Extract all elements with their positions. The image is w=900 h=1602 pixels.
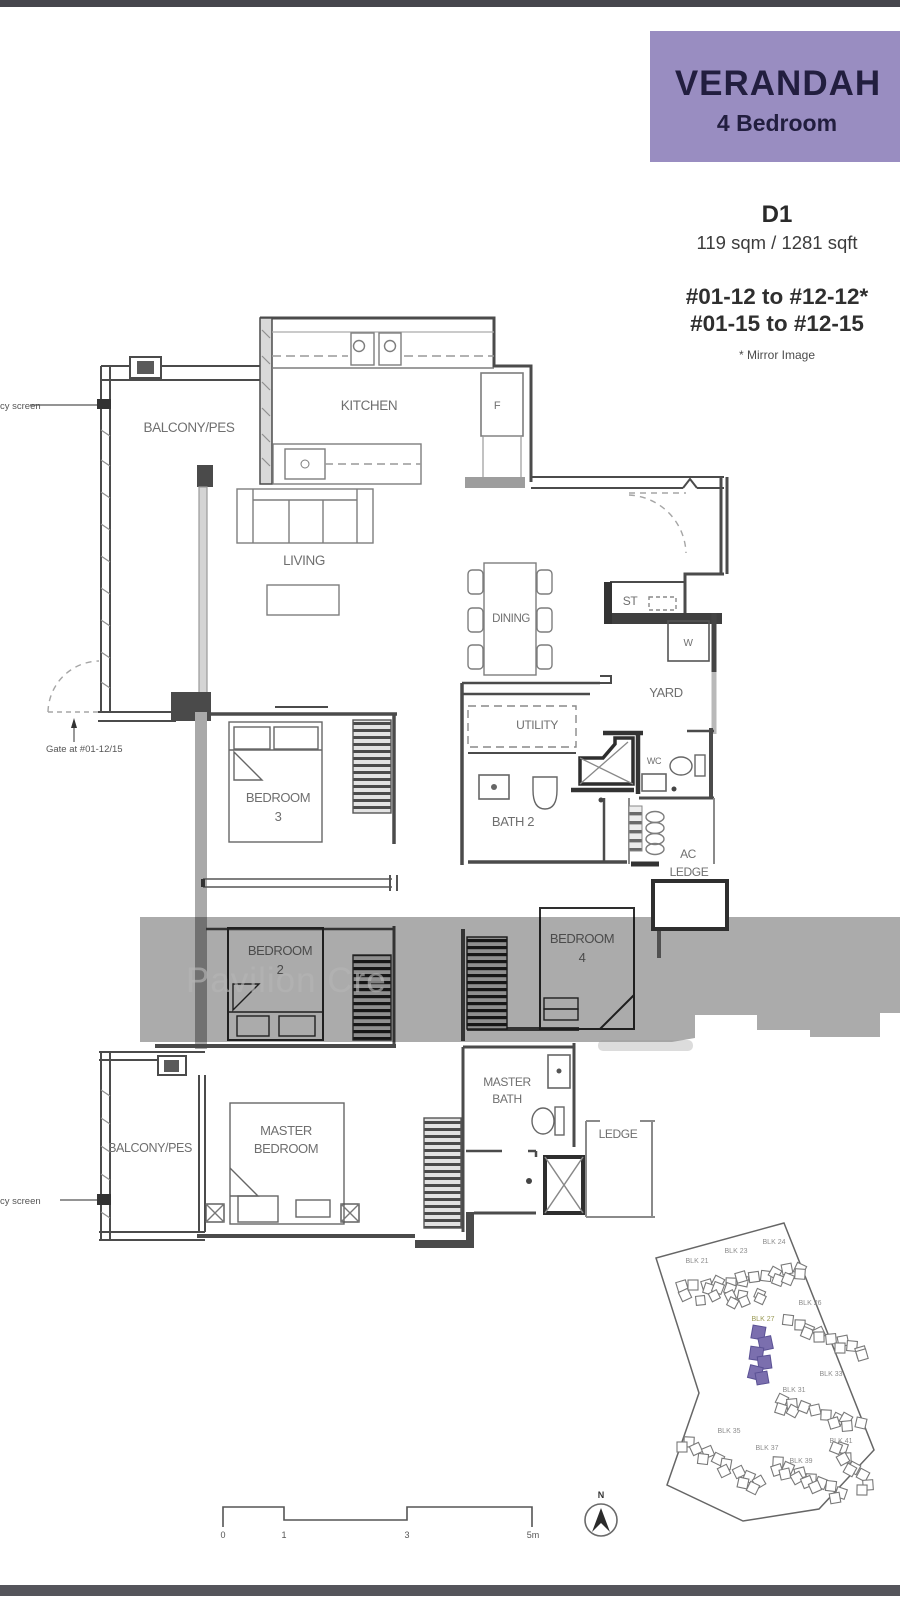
svg-text:BATH: BATH	[492, 1092, 522, 1106]
svg-text:BEDROOM: BEDROOM	[246, 790, 310, 805]
svg-text:119 sqm / 1281 sqft: 119 sqm / 1281 sqft	[696, 232, 857, 253]
svg-text:BLK 21: BLK 21	[686, 1258, 709, 1265]
svg-text:W: W	[683, 638, 693, 649]
svg-text:3: 3	[404, 1530, 409, 1540]
svg-text:Pavilion Cre: Pavilion Cre	[186, 961, 387, 1000]
svg-text:BLK 27: BLK 27	[752, 1316, 775, 1323]
svg-text:LEDGE: LEDGE	[599, 1127, 638, 1141]
svg-text:BLK 37: BLK 37	[756, 1445, 779, 1452]
svg-text:KITCHEN: KITCHEN	[341, 398, 397, 413]
svg-text:#01-12 to #12-12*: #01-12 to #12-12*	[686, 284, 869, 309]
svg-text:cy screen: cy screen	[0, 401, 41, 412]
svg-text:4 Bedroom: 4 Bedroom	[717, 110, 837, 136]
svg-text:YARD: YARD	[649, 685, 683, 700]
svg-text:BEDROOM: BEDROOM	[254, 1141, 318, 1156]
svg-text:BLK 35: BLK 35	[718, 1428, 741, 1435]
svg-text:BLK 24: BLK 24	[763, 1239, 786, 1246]
svg-text:#01-15 to #12-15: #01-15 to #12-15	[690, 311, 864, 336]
svg-text:BALCONY/PES: BALCONY/PES	[108, 1141, 192, 1155]
svg-text:D1: D1	[762, 201, 793, 228]
svg-text:N: N	[598, 1490, 605, 1500]
svg-text:BLK 39: BLK 39	[790, 1458, 813, 1465]
svg-text:* Mirror Image: * Mirror Image	[739, 348, 815, 362]
svg-text:ST: ST	[623, 594, 639, 608]
svg-text:BLK 41: BLK 41	[830, 1438, 853, 1445]
svg-text:LIVING: LIVING	[283, 553, 325, 568]
svg-text:1: 1	[281, 1530, 286, 1540]
svg-text:WC: WC	[647, 756, 662, 766]
svg-text:BLK 33: BLK 33	[820, 1371, 843, 1378]
svg-text:BLK 23: BLK 23	[725, 1248, 748, 1255]
svg-text:MASTER: MASTER	[483, 1075, 531, 1089]
svg-text:BLK 31: BLK 31	[783, 1387, 806, 1394]
svg-text:5m: 5m	[527, 1530, 540, 1540]
svg-text:0: 0	[220, 1530, 225, 1540]
svg-text:VERANDAH: VERANDAH	[675, 64, 881, 103]
svg-text:BALCONY/PES: BALCONY/PES	[144, 420, 235, 435]
svg-text:3: 3	[275, 809, 282, 824]
svg-text:F: F	[494, 400, 501, 412]
svg-text:LEDGE: LEDGE	[670, 865, 709, 879]
svg-text:BLK 26: BLK 26	[799, 1300, 822, 1307]
svg-text:BATH 2: BATH 2	[492, 814, 534, 829]
svg-text:DINING: DINING	[492, 613, 530, 625]
svg-text:cy screen: cy screen	[0, 1196, 41, 1207]
svg-text:AC: AC	[680, 847, 697, 861]
svg-text:Gate at #01-12/15: Gate at #01-12/15	[46, 744, 123, 755]
svg-text:MASTER: MASTER	[260, 1123, 312, 1138]
svg-text:UTILITY: UTILITY	[516, 718, 558, 732]
